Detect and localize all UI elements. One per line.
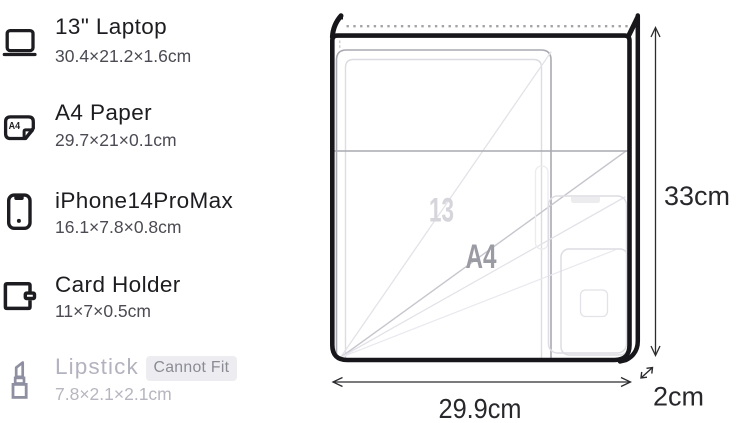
svg-text:13: 13 (429, 192, 454, 230)
svg-text:29.9cm: 29.9cm (439, 393, 522, 423)
svg-text:A4: A4 (466, 238, 497, 276)
svg-text:2cm: 2cm (653, 382, 704, 412)
svg-text:33cm: 33cm (664, 181, 730, 211)
